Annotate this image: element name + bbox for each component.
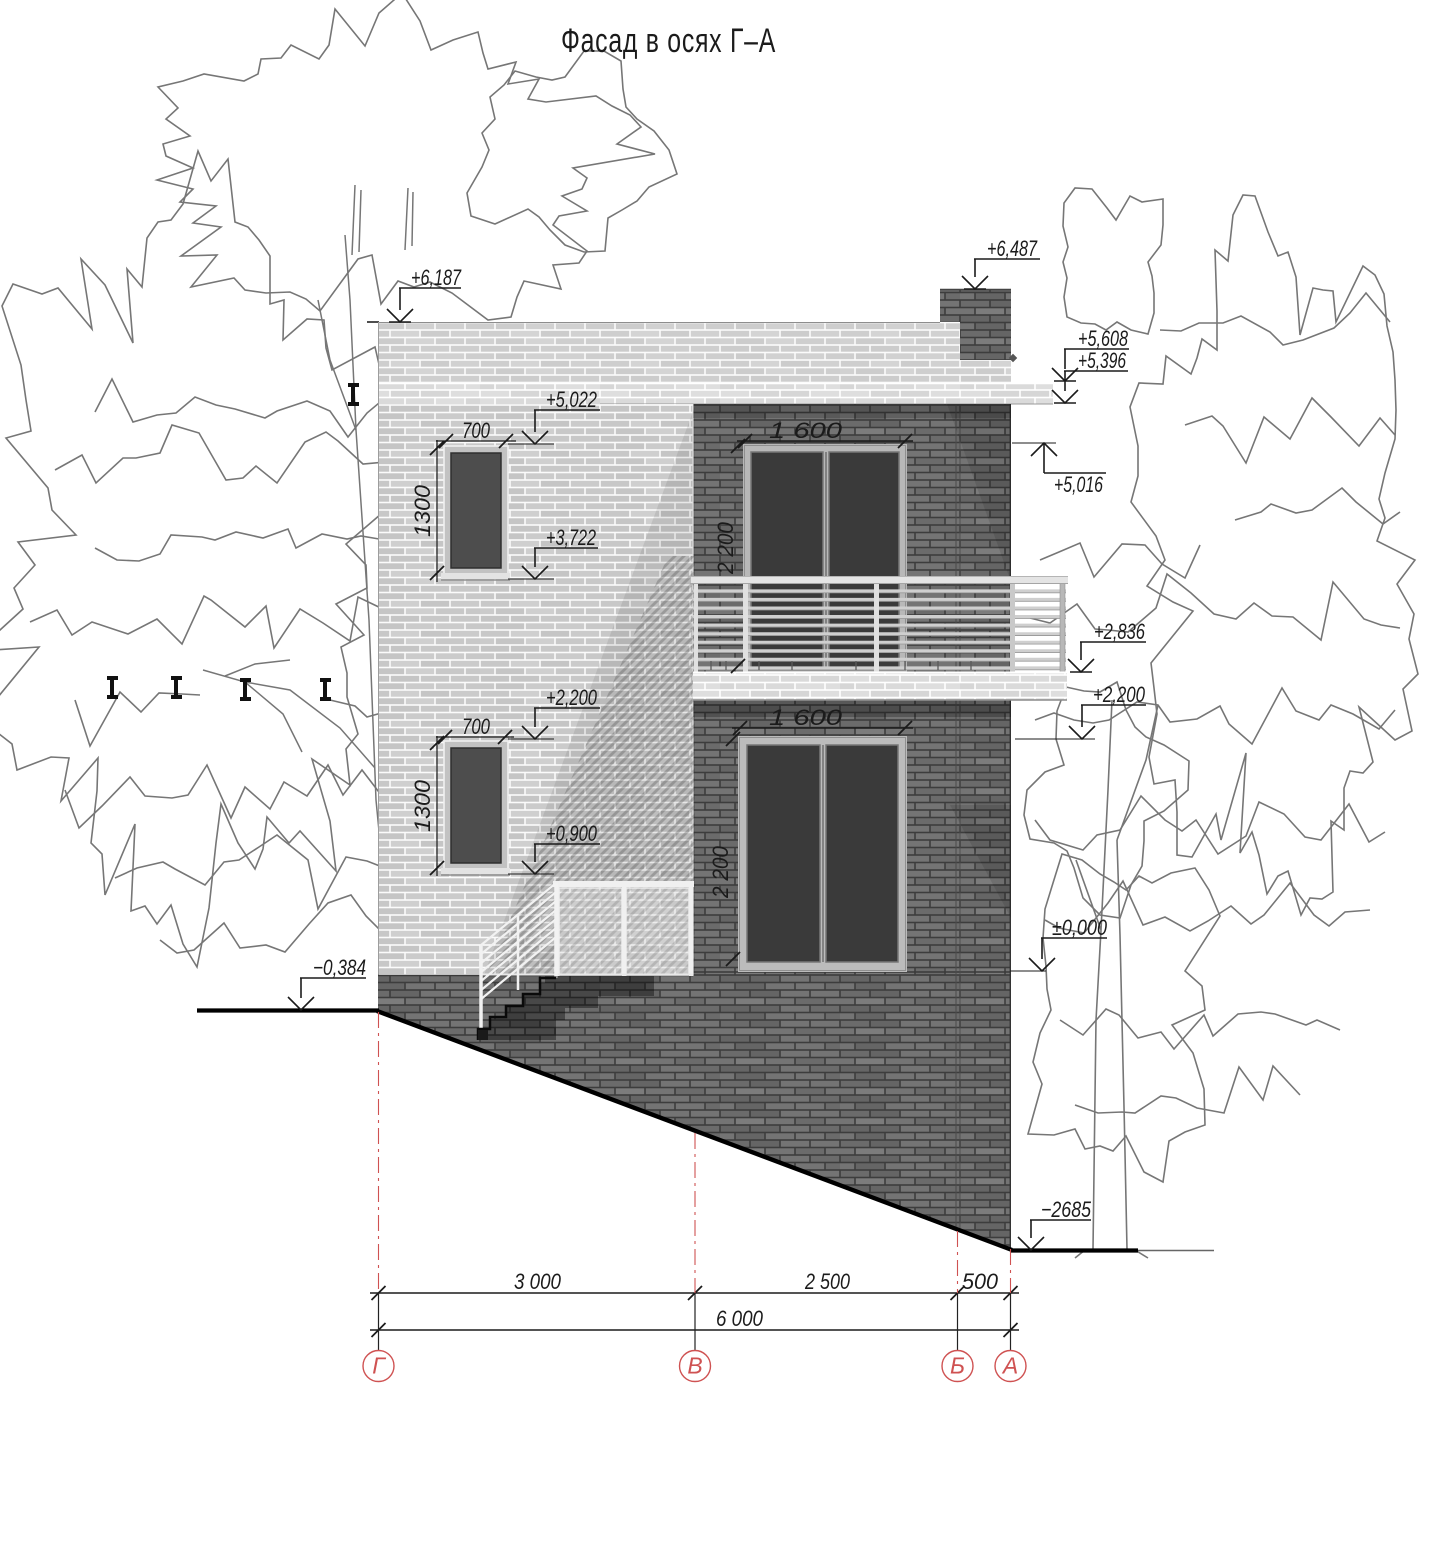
svg-text:+5,022: +5,022 (546, 387, 597, 412)
svg-text:+2,200: +2,200 (546, 685, 598, 710)
svg-text:В: В (687, 1353, 702, 1379)
svg-text:700: 700 (462, 714, 491, 739)
svg-text:1300: 1300 (410, 779, 435, 832)
svg-text:+6,487: +6,487 (987, 236, 1038, 261)
svg-text:+0,900: +0,900 (546, 821, 598, 846)
svg-text:1 600: 1 600 (769, 418, 843, 443)
svg-text:1300: 1300 (410, 484, 435, 537)
svg-text:6 000: 6 000 (716, 1306, 764, 1331)
svg-text:Г: Г (372, 1353, 386, 1379)
svg-text:+2,836: +2,836 (1094, 619, 1146, 644)
svg-text:А: А (1001, 1353, 1018, 1379)
svg-text:+6,187: +6,187 (411, 265, 462, 290)
svg-text:2 500: 2 500 (804, 1269, 850, 1294)
svg-text:+5,396: +5,396 (1078, 348, 1127, 373)
svg-text:−0,384: −0,384 (313, 955, 366, 980)
svg-text:−2685: −2685 (1041, 1197, 1092, 1222)
svg-text:Фасад в осях Г–А: Фасад в осях Г–А (561, 22, 776, 60)
svg-text:±0,000: ±0,000 (1052, 915, 1108, 940)
svg-text:Б: Б (950, 1353, 965, 1379)
svg-text:+2,200: +2,200 (1093, 682, 1146, 707)
svg-text:+5,016: +5,016 (1054, 472, 1104, 497)
svg-text:2 200: 2 200 (708, 845, 733, 899)
svg-text:1 600: 1 600 (769, 705, 843, 730)
svg-text:700: 700 (462, 418, 491, 443)
svg-text:2 200: 2 200 (713, 521, 738, 575)
svg-text:+3,722: +3,722 (546, 525, 596, 550)
svg-text:500: 500 (962, 1269, 999, 1294)
svg-text:3 000: 3 000 (514, 1269, 562, 1294)
